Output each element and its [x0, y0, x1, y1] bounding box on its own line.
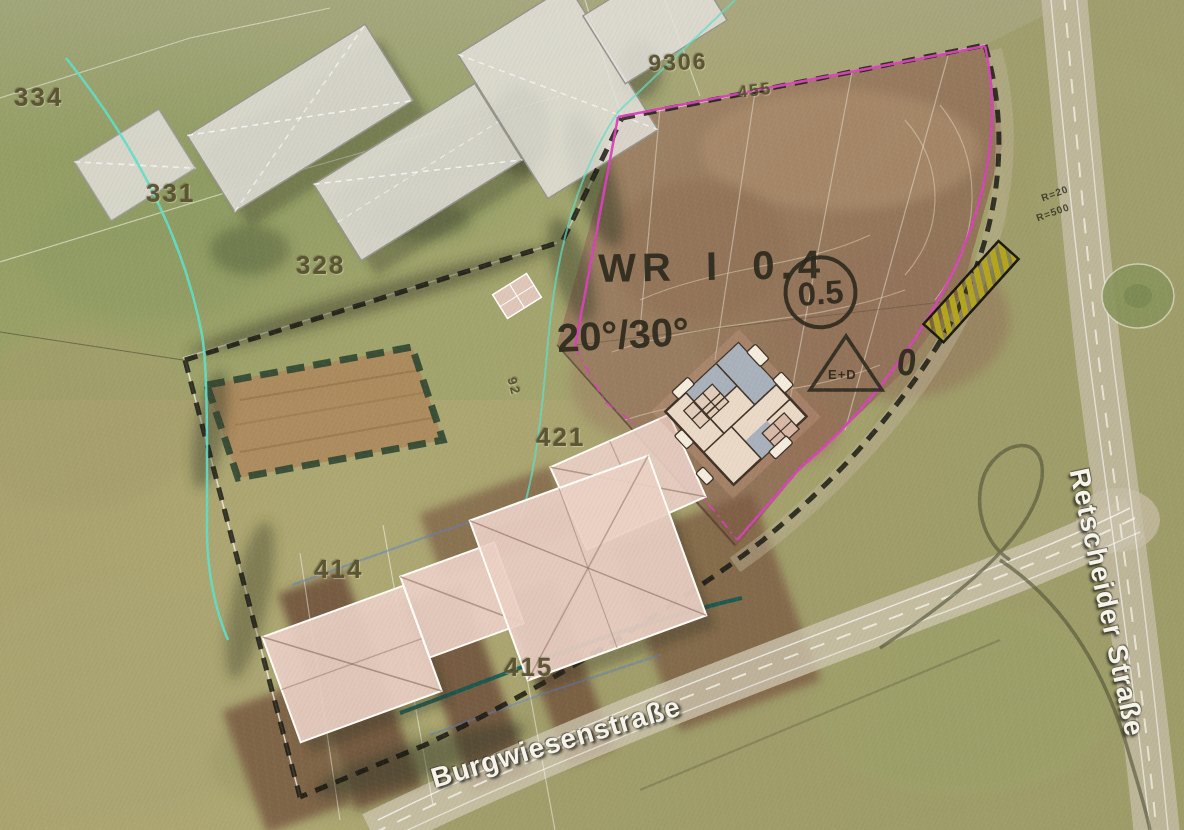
small-plan-square [493, 274, 542, 319]
parcel-label-334: 334 [14, 84, 63, 110]
parcel-label-455: 455 [737, 80, 773, 101]
garden-plot [207, 347, 443, 478]
parcel-label-414: 414 [314, 556, 363, 582]
parcel-label-415: 415 [504, 654, 553, 680]
roundabout-mound [1102, 264, 1174, 328]
plan-overlay-graphics [0, 0, 1184, 830]
parcel-label-328: 328 [296, 252, 345, 278]
aerial-plan-map[interactable]: 334 331 328 9306 455 421 92 414 415 WR I… [0, 0, 1184, 830]
parcel-label-421: 421 [536, 424, 585, 450]
parcel-label-9306: 9306 [648, 50, 708, 75]
roof-pitch-label: 20°/30° [556, 311, 690, 358]
parcel-label-331: 331 [146, 180, 195, 206]
triangle-e+d-label: E+D [828, 368, 857, 381]
